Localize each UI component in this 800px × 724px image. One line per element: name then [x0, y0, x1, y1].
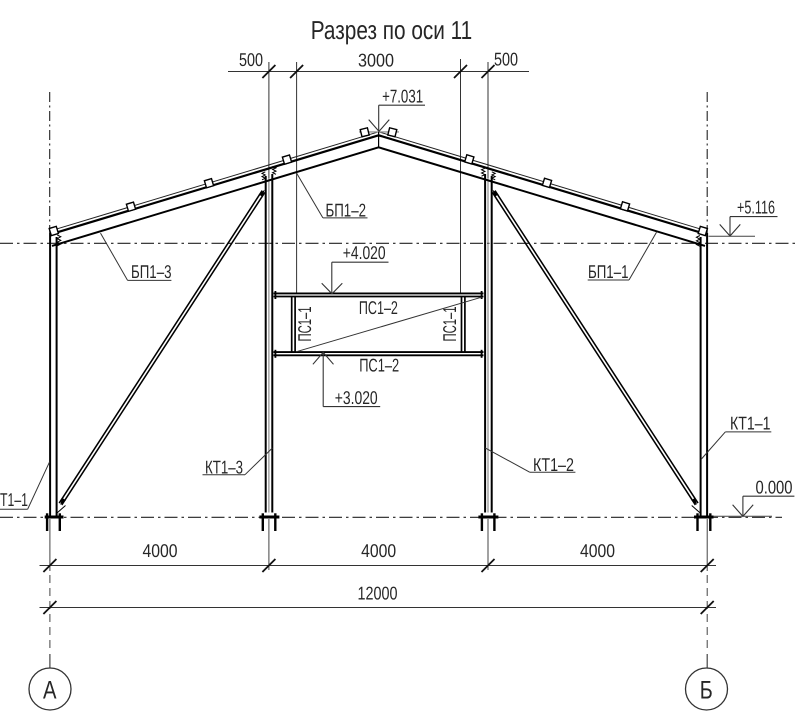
svg-text:ПС1–2: ПС1–2: [359, 355, 399, 376]
svg-text:4000: 4000: [361, 540, 396, 561]
svg-text:4000: 4000: [143, 540, 178, 561]
svg-text:Б: Б: [700, 677, 713, 705]
svg-text:+7.031: +7.031: [382, 86, 423, 107]
svg-text:3000: 3000: [358, 50, 394, 71]
svg-text:БП1–3: БП1–3: [131, 261, 172, 282]
svg-text:12000: 12000: [358, 583, 398, 604]
svg-text:0.000: 0.000: [756, 477, 793, 498]
svg-text:Т1–1: Т1–1: [0, 489, 28, 510]
svg-text:+4.020: +4.020: [343, 242, 386, 263]
svg-text:КТ1–1: КТ1–1: [730, 413, 771, 434]
svg-text:ПС1–1: ПС1–1: [294, 307, 315, 342]
svg-text:КТ1–2: КТ1–2: [533, 454, 574, 475]
svg-text:500: 500: [494, 49, 518, 70]
svg-text:А: А: [43, 677, 57, 705]
svg-text:ПС1–2: ПС1–2: [359, 297, 398, 318]
svg-text:БП1–2: БП1–2: [326, 200, 367, 221]
svg-text:БП1–1: БП1–1: [588, 261, 629, 282]
svg-text:500: 500: [239, 49, 263, 70]
svg-text:+5.116: +5.116: [737, 197, 775, 218]
svg-text:ПС1–1: ПС1–1: [439, 307, 460, 342]
svg-text:4000: 4000: [580, 540, 615, 561]
svg-text:Разрез по оси 11: Разрез по оси 11: [311, 15, 473, 45]
svg-text:+3.020: +3.020: [335, 387, 378, 408]
